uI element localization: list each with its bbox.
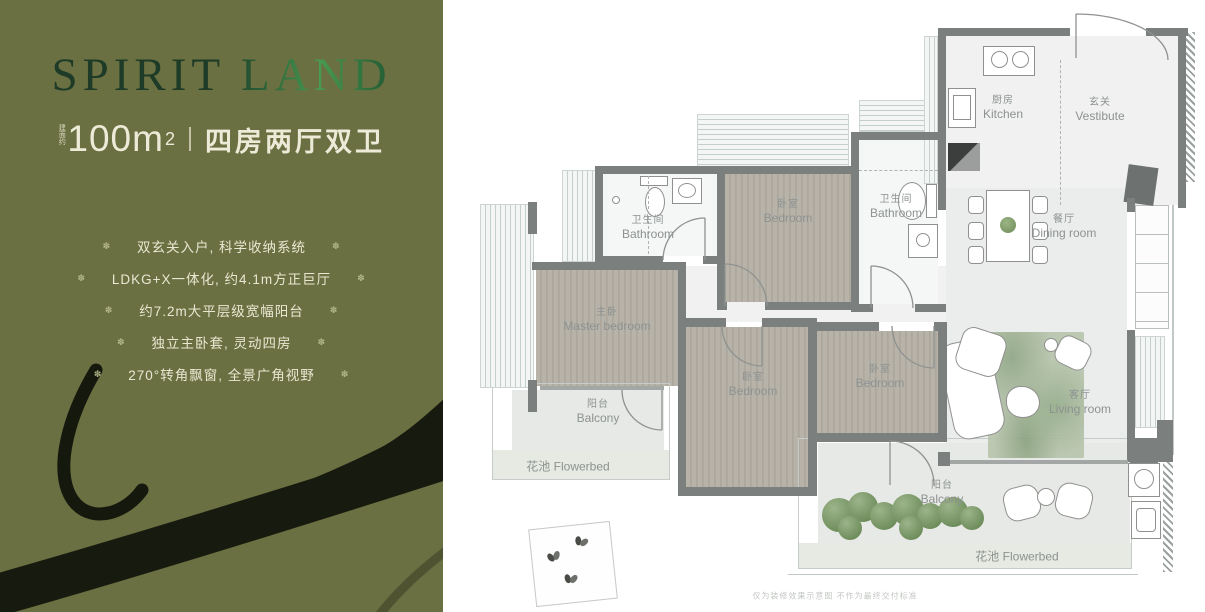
room-label-en: Balcony <box>577 411 620 425</box>
vanity-basin <box>916 233 930 247</box>
butterfly-icon <box>564 574 576 586</box>
room-label-en: Bedroom <box>764 211 813 225</box>
bay-window-bathroom-left <box>562 170 596 262</box>
room-label-master-bedroom: 主卧 Master bedroom <box>563 307 650 333</box>
dining-chair <box>968 222 984 240</box>
room-label-zh: 阳台 <box>921 480 964 492</box>
room-label-bedroom-right: 卧室 Bedroom <box>856 364 905 390</box>
poster-canvas: SPIRIT LAND 建面约 100m 2 四房两厅双卫 ✽ 双玄关入户, 科… <box>0 0 1205 612</box>
toilet-tank <box>640 176 668 186</box>
room-label-en: Dining room <box>1032 226 1097 240</box>
wall-segment <box>595 166 725 174</box>
window-line <box>950 460 1128 464</box>
flowerbed-zh: 花池 <box>526 460 550 474</box>
bathroom-sink-basin <box>678 183 696 198</box>
wall-segment <box>717 166 857 174</box>
room-label-en: Vestibute <box>1075 109 1124 123</box>
washing-machine-drum <box>1134 469 1154 489</box>
floor-drain <box>612 196 620 204</box>
bay-window-kitchen-left <box>924 36 938 184</box>
closet-right <box>1135 205 1169 329</box>
outer-terrace-line <box>788 574 1138 575</box>
balcony-table <box>1037 488 1055 506</box>
room-label-en: Master bedroom <box>563 319 650 333</box>
wall-segment <box>857 132 946 140</box>
room-label-balcony-left: 阳台 Balcony <box>577 399 620 425</box>
wall-segment <box>765 302 857 310</box>
wall-segment <box>938 322 947 442</box>
wall-segment <box>528 380 537 412</box>
room-label-zh: 卫生间 <box>870 194 922 206</box>
room-label-en: Bathroom <box>622 227 674 241</box>
bedroom-middle-floor <box>686 327 808 487</box>
table-plant <box>1000 217 1016 233</box>
wall-segment <box>817 433 947 442</box>
wall-segment <box>808 318 817 496</box>
wall-segment <box>938 28 1070 36</box>
floor-plan: 厨房 Kitchen 玄关 Vestibute 卫生间 Bathroom 卧室 … <box>0 0 1205 612</box>
fridge <box>948 143 980 171</box>
window-line <box>540 386 664 390</box>
boundary-hatch-top-right <box>1186 32 1195 182</box>
room-label-dining: 餐厅 Dining room <box>1032 214 1097 240</box>
dining-chair <box>968 246 984 264</box>
dining-chair <box>968 196 984 214</box>
room-label-zh: 厨房 <box>983 95 1023 107</box>
wall-segment <box>1130 438 1158 463</box>
room-label-zh: 卧室 <box>764 199 813 211</box>
flowerbed-zh: 花池 <box>975 550 999 564</box>
room-label-en: Balcony <box>921 492 964 506</box>
wall-segment <box>678 262 686 496</box>
butterfly-icon <box>547 550 563 566</box>
wall-segment <box>717 302 727 310</box>
shrub <box>960 506 984 530</box>
wall-segment <box>938 452 950 466</box>
stove-burner <box>991 51 1008 68</box>
wall-segment <box>717 166 725 310</box>
flowerbed-en: Flowerbed <box>554 460 610 474</box>
label-flowerbed-bottom: 花池 Flowerbed <box>975 548 1058 565</box>
bay-window-master-left <box>480 204 534 388</box>
room-label-en: Kitchen <box>983 107 1023 121</box>
bedroom-top-floor <box>725 174 851 302</box>
room-label-bedroom-top: 卧室 Bedroom <box>764 199 813 225</box>
room-label-zh: 卧室 <box>856 364 905 376</box>
wall-segment <box>528 202 537 234</box>
wall-segment <box>532 262 686 270</box>
room-label-zh: 餐厅 <box>1032 214 1097 226</box>
wall-segment <box>1157 420 1173 462</box>
room-label-en: Bedroom <box>856 376 905 390</box>
bay-window-top-center <box>697 114 849 168</box>
wall-segment <box>817 322 879 331</box>
decorative-butterfly-sketch <box>528 521 618 607</box>
room-label-en: Bedroom <box>729 384 778 398</box>
room-label-kitchen: 厨房 Kitchen <box>983 95 1023 121</box>
room-label-bathroom-right: 卫生间 Bathroom <box>870 194 922 220</box>
room-label-en: Bathroom <box>870 206 922 220</box>
room-label-en: Living room <box>1049 402 1111 416</box>
room-label-balcony-bottom: 阳台 Balcony <box>921 480 964 506</box>
utility-sink-basin <box>1136 508 1156 532</box>
room-label-vestibule: 玄关 Vestibute <box>1075 97 1124 123</box>
wall-segment <box>851 132 859 312</box>
wall-segment <box>915 304 946 312</box>
outer-right-line <box>1172 205 1174 455</box>
disclaimer-text: 仅为装修效果示意图 不作为最终交付标准 <box>752 591 917 602</box>
wall-segment <box>1127 198 1135 212</box>
room-label-zh: 玄关 <box>1075 97 1124 109</box>
label-flowerbed-left: 花池 Flowerbed <box>526 458 609 475</box>
shrub <box>899 516 923 540</box>
room-label-zh: 客厅 <box>1049 390 1111 402</box>
boundary-hatch-bottom-right <box>1163 460 1173 572</box>
wall-segment <box>1178 28 1186 208</box>
dining-chair <box>1032 196 1048 214</box>
shrub <box>838 516 862 540</box>
stove-burner <box>1012 51 1029 68</box>
butterfly-icon <box>574 536 589 551</box>
wall-segment <box>686 318 726 327</box>
kitchen-sink-basin <box>953 95 971 120</box>
toilet-tank <box>926 184 937 218</box>
wall-segment <box>678 487 817 496</box>
room-label-zh: 卫生间 <box>622 215 674 227</box>
coffee-table <box>1006 386 1040 418</box>
room-label-living: 客厅 Living room <box>1049 390 1111 416</box>
room-label-zh: 主卧 <box>563 307 650 319</box>
flowerbed-en: Flowerbed <box>1003 550 1059 564</box>
room-label-bedroom-middle: 卧室 Bedroom <box>729 372 778 398</box>
wall-segment <box>938 28 946 210</box>
wall-segment <box>595 166 603 264</box>
dashed-divider <box>1060 60 1061 205</box>
room-label-bathroom-left: 卫生间 Bathroom <box>622 215 674 241</box>
dining-chair <box>1032 246 1048 264</box>
dashed-divider <box>859 170 938 171</box>
bay-window-living-right <box>1135 336 1165 428</box>
room-label-zh: 阳台 <box>577 399 620 411</box>
room-label-zh: 卧室 <box>729 372 778 384</box>
